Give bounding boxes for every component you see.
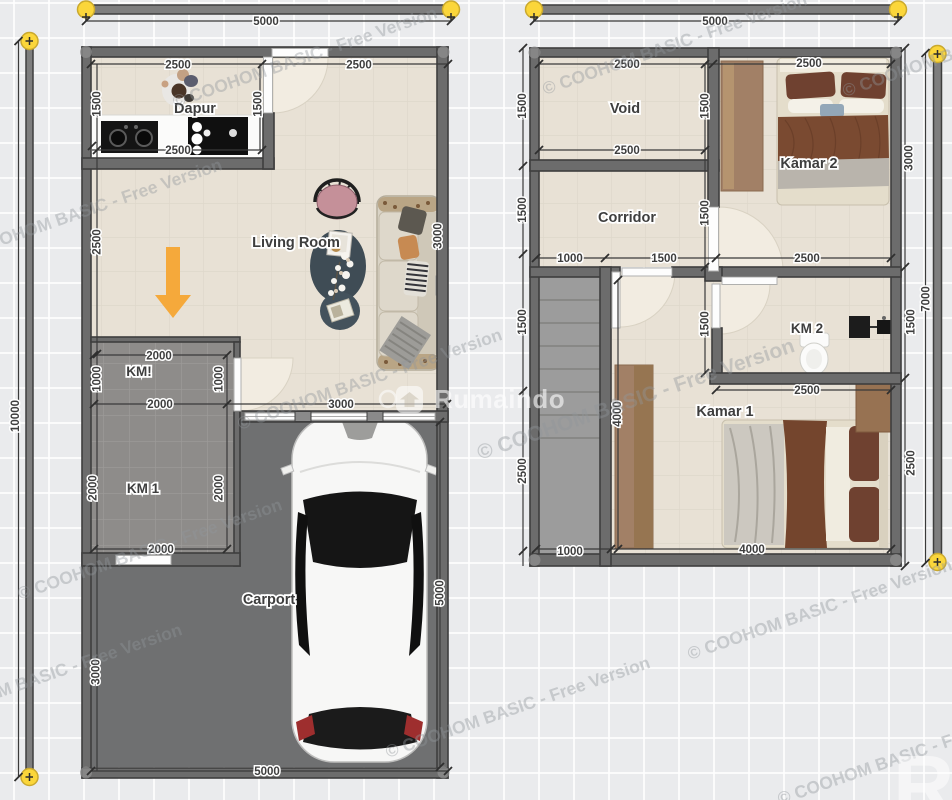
svg-text:1500: 1500: [253, 91, 265, 117]
svg-text:2500: 2500: [165, 60, 191, 72]
svg-text:1500: 1500: [517, 197, 529, 223]
svg-text:KM!: KM!: [126, 364, 152, 379]
svg-text:5000: 5000: [253, 16, 279, 28]
svg-text:1500: 1500: [517, 93, 529, 119]
svg-text:KM 2: KM 2: [791, 321, 823, 336]
svg-text:2000: 2000: [147, 399, 173, 411]
svg-text:Rumaindo: Rumaindo: [434, 384, 565, 414]
svg-text:KM 1: KM 1: [127, 481, 160, 496]
svg-text:2000: 2000: [88, 475, 100, 501]
svg-text:1000: 1000: [214, 366, 226, 392]
svg-text:1000: 1000: [557, 253, 583, 265]
svg-text:R: R: [893, 739, 952, 800]
svg-text:1500: 1500: [700, 93, 712, 119]
svg-text:Void: Void: [610, 101, 640, 117]
svg-text:4000: 4000: [739, 544, 765, 556]
svg-text:1500: 1500: [517, 309, 529, 335]
svg-text:2500: 2500: [794, 253, 820, 265]
svg-text:1500: 1500: [700, 200, 712, 226]
svg-text:2000: 2000: [214, 475, 226, 501]
svg-text:2500: 2500: [92, 229, 104, 255]
svg-text:Carport: Carport: [243, 592, 296, 608]
svg-text:Corridor: Corridor: [598, 210, 656, 226]
svg-text:2500: 2500: [614, 145, 640, 157]
svg-text:7000: 7000: [921, 286, 933, 312]
svg-text:1500: 1500: [700, 311, 712, 337]
svg-text:1500: 1500: [651, 253, 677, 265]
svg-text:© COOHOM BASIC - Free Version: © COOHOM BASIC - Free Version: [685, 554, 952, 664]
svg-text:1500: 1500: [906, 309, 918, 335]
svg-text:1000: 1000: [92, 366, 104, 392]
svg-text:Kamar 2: Kamar 2: [780, 156, 837, 172]
svg-text:2500: 2500: [796, 58, 822, 70]
svg-text:2000: 2000: [146, 351, 172, 363]
svg-text:3000: 3000: [904, 145, 916, 171]
svg-text:Living Room: Living Room: [252, 235, 340, 251]
svg-text:Kamar 1: Kamar 1: [696, 404, 753, 420]
svg-text:2500: 2500: [165, 145, 191, 157]
svg-text:10000: 10000: [10, 400, 22, 432]
svg-text:2500: 2500: [794, 385, 820, 397]
svg-text:2500: 2500: [517, 458, 529, 484]
svg-text:3000: 3000: [433, 223, 445, 249]
svg-text:2500: 2500: [346, 60, 372, 72]
svg-text:1500: 1500: [92, 91, 104, 117]
svg-text:5000: 5000: [254, 766, 280, 778]
svg-text:5000: 5000: [435, 580, 447, 606]
svg-text:1000: 1000: [557, 546, 583, 558]
svg-text:2500: 2500: [906, 450, 918, 476]
